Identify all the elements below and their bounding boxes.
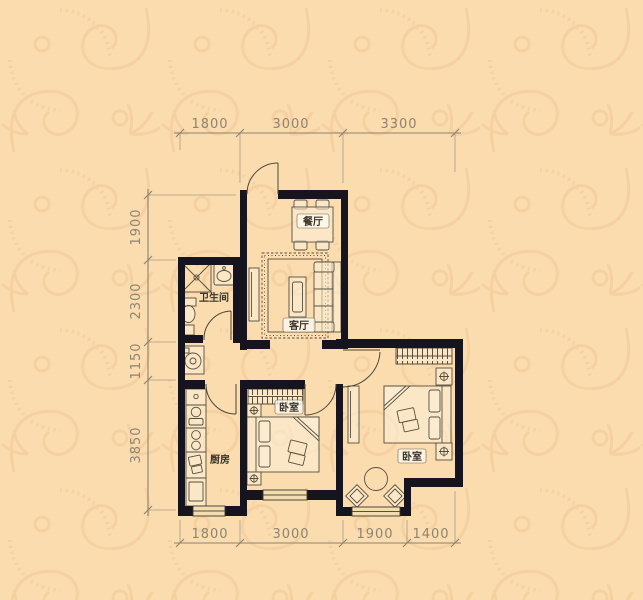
wall-kitchen-right	[240, 380, 247, 516]
wall-bathroom-right	[233, 257, 240, 343]
wall-bathroom-bottom	[178, 335, 203, 343]
bedroom-middle-label: 卧室	[279, 401, 299, 414]
dim-top-2: 3000	[272, 117, 309, 132]
dining-room-label: 餐厅	[302, 215, 323, 228]
dim-bottom-1: 1800	[191, 527, 228, 542]
wall-bedroom2-bottom	[411, 478, 463, 487]
wall-living-left	[240, 190, 247, 350]
wall-bedroom1-top	[240, 380, 305, 389]
dim-bottom-3: 1900	[356, 527, 393, 542]
dim-left-3: 1150	[129, 342, 144, 379]
wardrobe-right-bedroom	[396, 348, 452, 364]
kitchen-window	[193, 506, 225, 516]
nightstand	[436, 368, 452, 385]
dim-bottom-2: 3000	[272, 527, 309, 542]
floor-plan: 餐厅 客厅 卫生间 厨房 卧室 卧室 1800 3000 3300 1900 2…	[0, 0, 643, 600]
bed-middle-bedroom	[247, 417, 319, 472]
sofa	[314, 262, 341, 332]
dim-left-2: 2300	[129, 282, 144, 319]
dim-left-4: 3850	[129, 426, 144, 463]
dim-left-1: 1900	[129, 208, 144, 245]
dim-top-1: 1800	[191, 117, 228, 132]
wall-living-right	[341, 190, 348, 349]
living-room-label: 客厅	[288, 319, 309, 332]
bedroom1-window	[263, 490, 307, 500]
nightstand	[436, 443, 452, 460]
kitchen-label: 厨房	[210, 453, 230, 466]
wall-bedroom2-top	[348, 339, 463, 348]
wall-living-bottom-left	[240, 340, 270, 349]
dresser-right-bedroom	[348, 386, 359, 443]
kitchen-counter	[186, 389, 206, 506]
dim-bottom-4: 1400	[412, 527, 449, 542]
bed-right-bedroom	[384, 386, 451, 443]
tv-cabinet	[249, 268, 259, 321]
nightstand	[247, 472, 261, 485]
balcony-window	[352, 507, 400, 516]
floorplan-canvas: 餐厅 客厅 卫生间 厨房 卧室 卧室 1800 3000 3300 1900 2…	[0, 0, 643, 600]
bathroom-sink	[214, 264, 234, 285]
washing-machine	[182, 346, 204, 374]
coffee-table	[289, 277, 306, 317]
wall-top	[278, 190, 348, 199]
bedroom-right-label: 卧室	[402, 450, 422, 463]
wall-living-bottom-right	[322, 340, 348, 349]
wall-bedroom2-right	[455, 339, 463, 487]
nightstand	[247, 404, 261, 417]
wall-bedroom2-left-stub	[336, 339, 343, 349]
dim-top-3: 3300	[380, 117, 417, 132]
wall-kitchen-top	[178, 380, 205, 389]
wall-bathroom-top	[178, 257, 240, 265]
bathroom-label: 卫生间	[199, 291, 229, 304]
